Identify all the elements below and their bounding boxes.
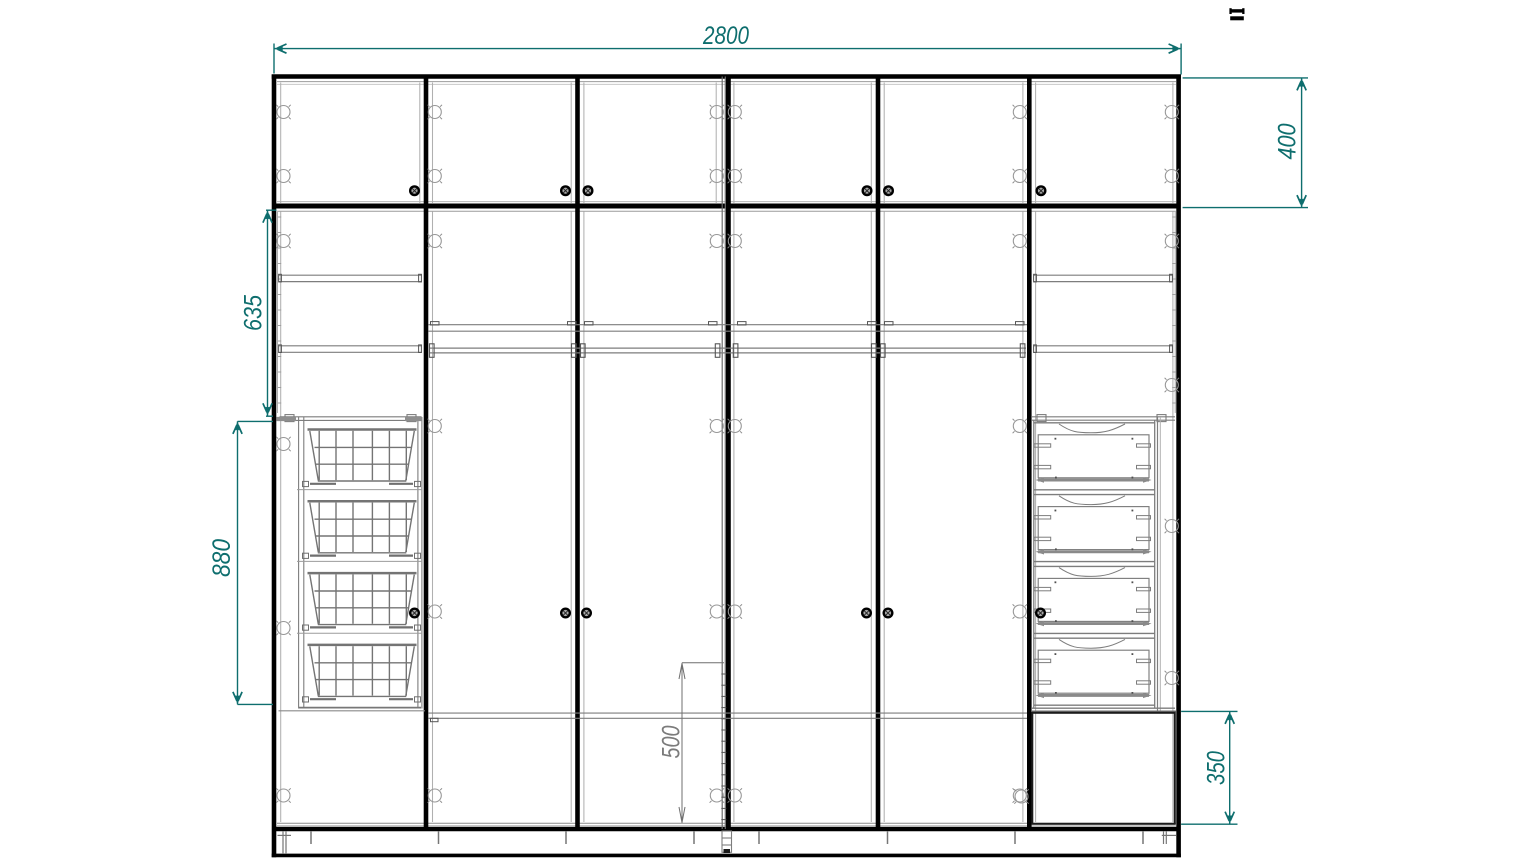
svg-text:880: 880	[208, 539, 236, 577]
svg-text:350: 350	[1203, 751, 1231, 785]
svg-text:2800: 2800	[702, 22, 749, 50]
svg-text:400: 400	[1274, 123, 1302, 159]
svg-text:500: 500	[658, 725, 686, 758]
svg-text:635: 635	[240, 295, 268, 331]
